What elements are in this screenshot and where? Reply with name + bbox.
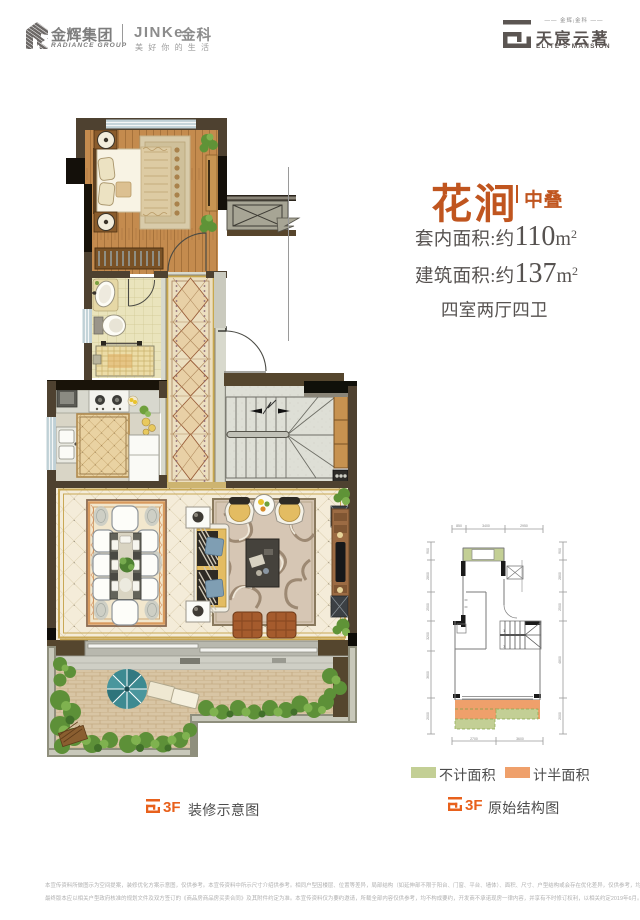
- svg-text:850: 850: [456, 524, 462, 528]
- svg-text:900: 900: [558, 548, 562, 554]
- svg-text:2800: 2800: [558, 572, 562, 580]
- svg-text:4800: 4800: [558, 656, 562, 664]
- svg-text:2000: 2000: [558, 712, 562, 720]
- svg-text:2950: 2950: [520, 524, 528, 528]
- svg-text:900: 900: [426, 548, 430, 554]
- svg-text:2500: 2500: [426, 603, 430, 611]
- svg-text:3200: 3200: [426, 632, 430, 640]
- svg-text:2000: 2000: [426, 712, 430, 720]
- svg-text:3600: 3600: [516, 737, 524, 741]
- svg-text:1: 1: [503, 628, 506, 633]
- svg-text:2700: 2700: [470, 737, 478, 741]
- svg-text:2800: 2800: [426, 572, 430, 580]
- svg-text:7: 7: [503, 644, 506, 649]
- svg-text:3400: 3400: [482, 524, 490, 528]
- svg-text:3600: 3600: [426, 671, 430, 679]
- svg-text:2500: 2500: [558, 603, 562, 611]
